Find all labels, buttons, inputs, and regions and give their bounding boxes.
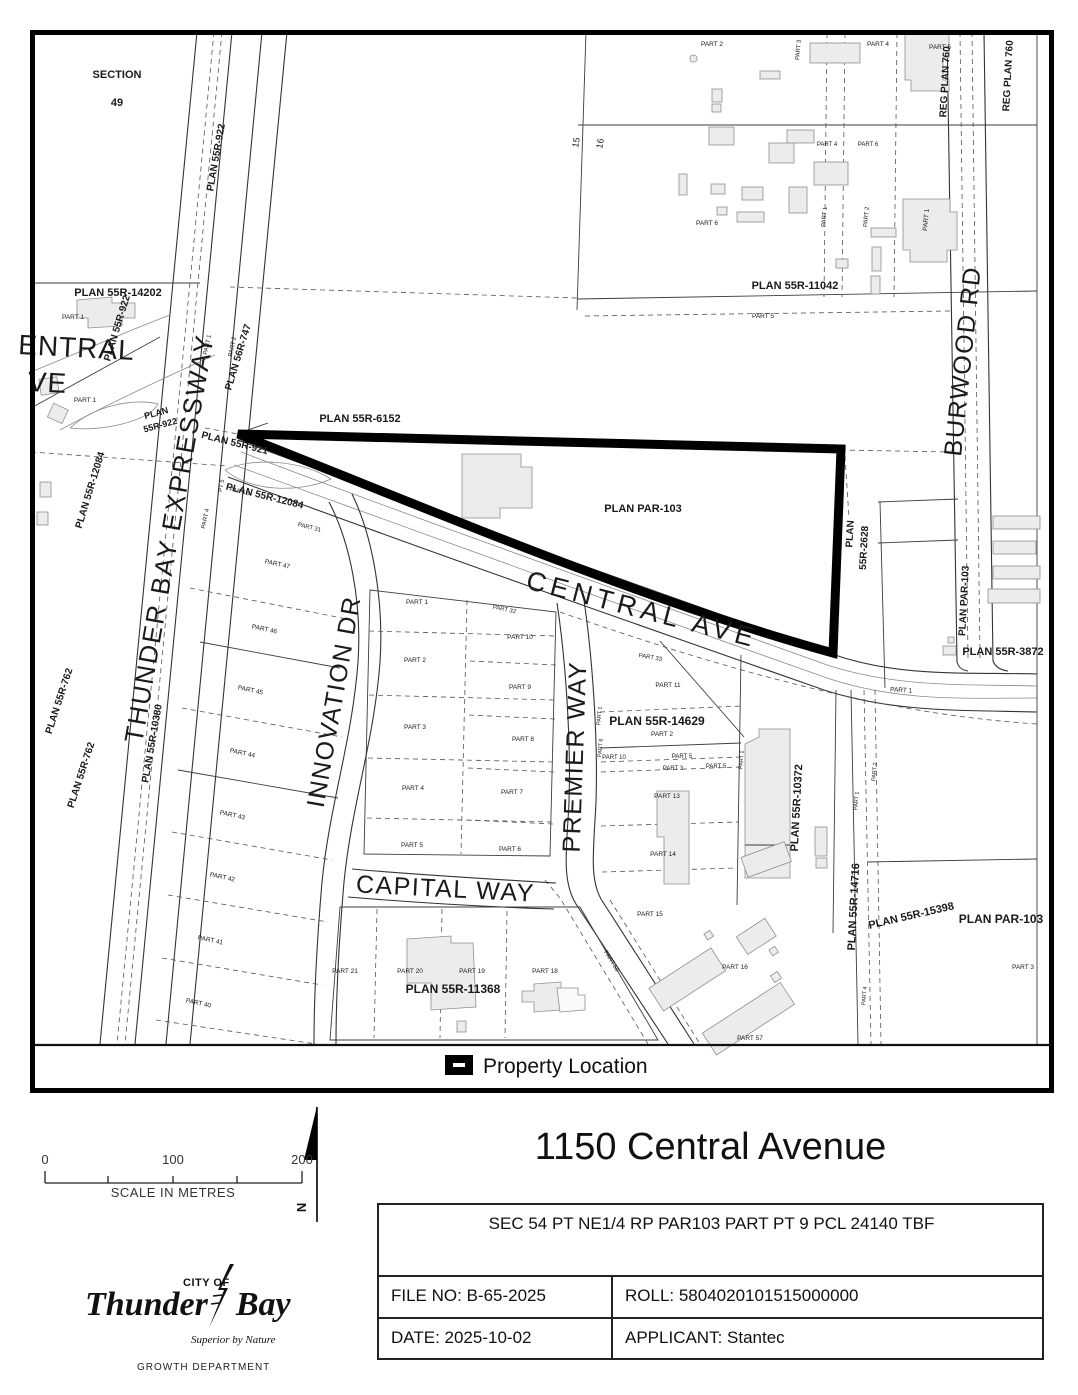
property-location-swatch-icon (449, 1059, 469, 1071)
map-label: PART 47 (264, 558, 291, 570)
logo-name-second: Bay (236, 1286, 291, 1323)
survey-map-page: THUNDER BAY EXPRESSWAYCENTRAL AVEENTRALV… (0, 0, 1078, 1395)
map-label: 49 (111, 97, 123, 109)
map-label: PART 1 (596, 706, 604, 725)
legal-description-cell: SEC 54 PT NE1/4 RP PAR103 PART PT 9 PCL … (379, 1205, 1042, 1277)
map-label: PART 3 (663, 766, 684, 772)
map-label: PLAN 55R-11042 (752, 280, 839, 292)
date-cell: DATE: 2025-10-02 (379, 1319, 613, 1358)
map-label: PART 33 (638, 653, 663, 663)
logo-tagline: Superior by Nature (191, 1334, 276, 1346)
logo-department: GROWTH DEPARTMENT (137, 1362, 270, 1373)
map-label: PART 5 (672, 754, 693, 760)
roll-cell: ROLL: 5804020101515000000 (613, 1277, 1042, 1319)
map-label: PART 1 (406, 599, 428, 606)
street-label-burwood-rd: BURWOOD RD (939, 265, 987, 458)
map-label: PART 41 (197, 934, 224, 946)
map-label: PLAN 55R-15398 (867, 900, 955, 931)
map-label: PART 4 (402, 785, 424, 792)
map-label: PART 9 (509, 684, 531, 691)
scale-end: 200 (284, 1152, 320, 1167)
map-label: PART 4 (867, 41, 889, 48)
map-label: PLAN 55R-3872 (962, 646, 1043, 658)
map-label: PLAN 55R-14629 (609, 714, 705, 728)
map-label: 55R-2628 (858, 525, 871, 570)
logo-name: ThunderBay (85, 1286, 291, 1324)
map-label: PART 6 (858, 142, 879, 148)
map-label: PART 8 (512, 736, 534, 743)
map-label: PLAN PAR-103 (957, 565, 972, 636)
scale-caption: SCALE IN METRES (108, 1185, 238, 1200)
property-building-footprint (462, 454, 532, 518)
map-label: PART 14 (650, 851, 676, 858)
property-location-outline (238, 434, 841, 653)
map-label: PART 3 (404, 724, 426, 731)
city-logo: CITY OF ThunderBay Superior by Nature GR… (85, 1268, 305, 1378)
map-label: PART 13 (654, 793, 680, 800)
map-label: PART 10 (507, 634, 533, 641)
lightning-bolt-icon (205, 1264, 237, 1330)
map-label: PART 16 (722, 964, 748, 971)
map-label: REG PLAN 760 (938, 46, 953, 118)
map-label: PART 15 (637, 911, 663, 918)
map-label: PLAN 55R-11368 (406, 982, 501, 996)
map-label: PART 45 (237, 684, 264, 696)
file-no-cell: FILE NO: B-65-2025 (379, 1277, 613, 1319)
map-label: PART 42 (209, 871, 236, 883)
map-label: 16 (594, 138, 606, 150)
legend-label: Property Location (483, 1055, 648, 1079)
map-label: PART 5 (401, 842, 423, 849)
map-label: PART 7 (501, 789, 523, 796)
map-label: PART 57 (737, 1035, 763, 1042)
north-label: N (294, 1203, 309, 1212)
map-label: PART 11 (655, 682, 681, 689)
map-label: PART 5 (752, 313, 774, 320)
applicant-cell: APPLICANT: Stantec (613, 1319, 1042, 1358)
map-label: PART 1 (74, 397, 96, 404)
map-label: PLAN 55R-10372 (789, 764, 806, 852)
map-label: PART 44 (229, 747, 256, 759)
map-label: PART 18 (532, 968, 558, 975)
map-label: PLAN 55R-762 (66, 741, 98, 810)
map-label: PART 2 (871, 762, 879, 781)
street-label-central-ave: CENTRAL AVE (523, 565, 761, 654)
buildings-layer (37, 34, 1040, 1055)
map-label: PART 5 (706, 764, 727, 770)
map-label: PART 32 (492, 605, 517, 616)
title-block-table: SEC 54 PT NE1/4 RP PAR103 PART PT 9 PCL … (377, 1203, 1044, 1360)
map-label: PART 20 (397, 968, 423, 975)
map-label: PART 5 (929, 44, 951, 51)
map-label: PART 10 (602, 755, 626, 761)
map-label: PART 2 (701, 41, 723, 48)
map-label: PLAN 55R-762 (44, 667, 76, 736)
street-label-capital-way: CAPITAL WAY (355, 870, 535, 907)
logo-name-first: Thunder (85, 1286, 208, 1323)
map-label: PART 3 (1012, 964, 1034, 971)
map-label: PLAN 55R-14202 (74, 287, 161, 299)
scale-middle: 100 (155, 1152, 191, 1167)
map-label: PART 31 (297, 522, 322, 534)
street-label-innovation-dr: INNOVATION DR (302, 594, 367, 810)
map-label: PART 2 (404, 657, 426, 664)
map-label: REG PLAN 760 (1001, 40, 1016, 112)
street-label-premier-way: PREMIER WAY (558, 661, 593, 853)
map-label: PART 4 (861, 986, 869, 1005)
scale-start: 0 (38, 1152, 52, 1167)
map-label: PLAN 55R-12084 (74, 450, 108, 530)
map-label: PART 59 (602, 950, 620, 974)
map-frame (33, 33, 1052, 1091)
map-label: PART 40 (185, 997, 212, 1009)
map-label: PART 4 (201, 508, 211, 530)
map-label: PLAN 55R-6152 (319, 413, 400, 425)
map-label: SECTION (93, 69, 142, 81)
map-label: PLAN (844, 520, 856, 548)
map-label: 15 (570, 137, 582, 149)
map-label: PART 1 (62, 314, 84, 321)
map-label: PART 43 (219, 809, 246, 821)
map-label: PART 2 (863, 206, 871, 227)
map-label: PART 3 (795, 39, 803, 60)
map-label: PLAN PAR-103 (604, 503, 681, 515)
map-label: PART 46 (251, 623, 278, 635)
map-label: PLAN 55R-922 (205, 123, 228, 193)
map-label: PLAN 55R-14716 (846, 863, 863, 951)
map-label: PART 6 (499, 846, 521, 853)
map-label: PART 2 (651, 731, 673, 738)
map-labels-layer: THUNDER BAY EXPRESSWAYCENTRAL AVEENTRALV… (18, 39, 1044, 1042)
scale-bar (45, 1171, 302, 1183)
map-label: PART 1 (853, 791, 861, 810)
map-label: PART 6 (696, 220, 718, 227)
page-title: 1150 Central Avenue (377, 1126, 1044, 1169)
map-label: PLAN PAR-103 (959, 912, 1044, 926)
map-label: PART 21 (332, 968, 358, 975)
map-label: PART 4 (817, 142, 838, 148)
map-label: PART 1 (821, 206, 829, 227)
map-label: PART 19 (459, 968, 485, 975)
